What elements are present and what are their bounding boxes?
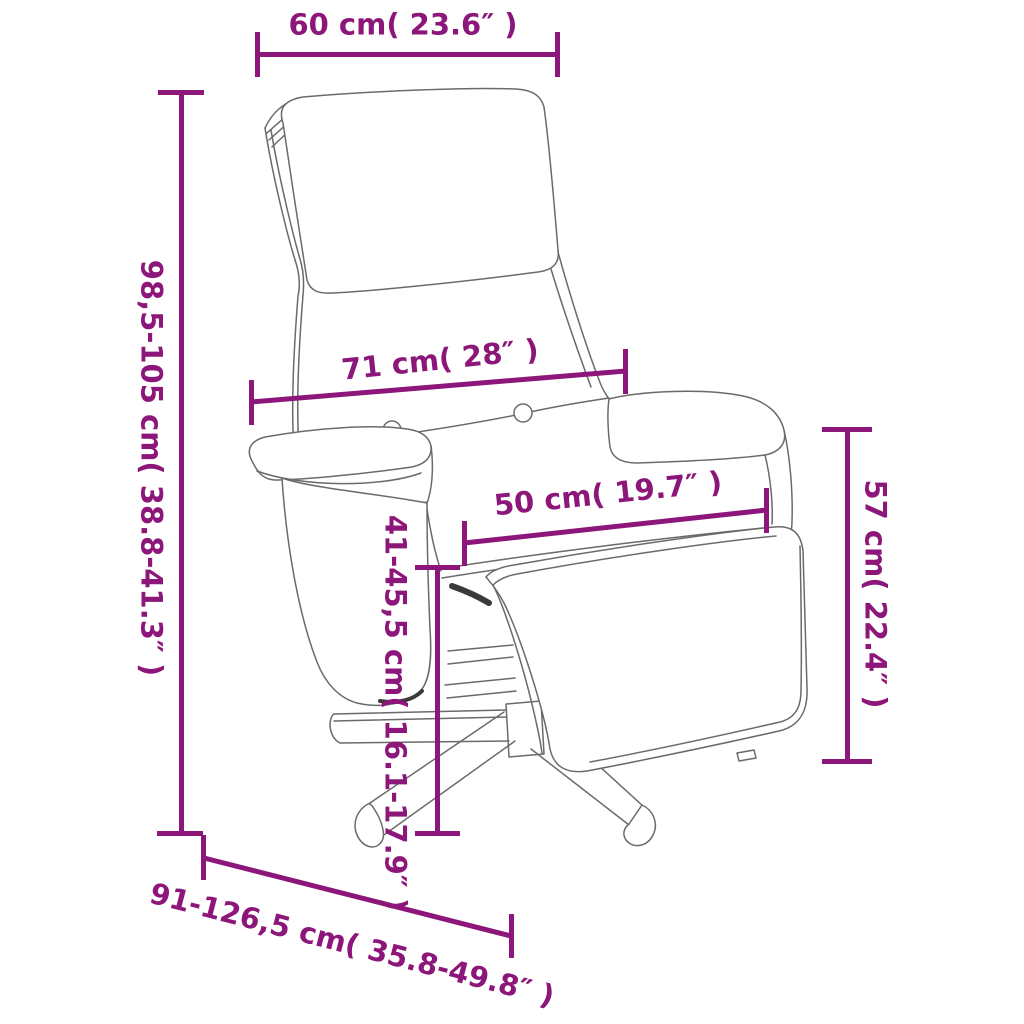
armrest-side-height-label: 57 cm( 22.4″ ) [861,479,890,708]
seat-height-label: 41-45,5 cm( 16.1-17.9″ ) [381,515,410,911]
recliner-chair-drawing [249,88,807,846]
headrest-width-label: 60 cm( 23.6″ ) [288,11,517,40]
total-height-label: 98,5-105 cm( 38.8-41.3″ ) [137,260,166,676]
dimension-diagram: 60 cm( 23.6″ ) 98,5-105 cm( 38.8-41.3″ )… [0,0,1024,1024]
